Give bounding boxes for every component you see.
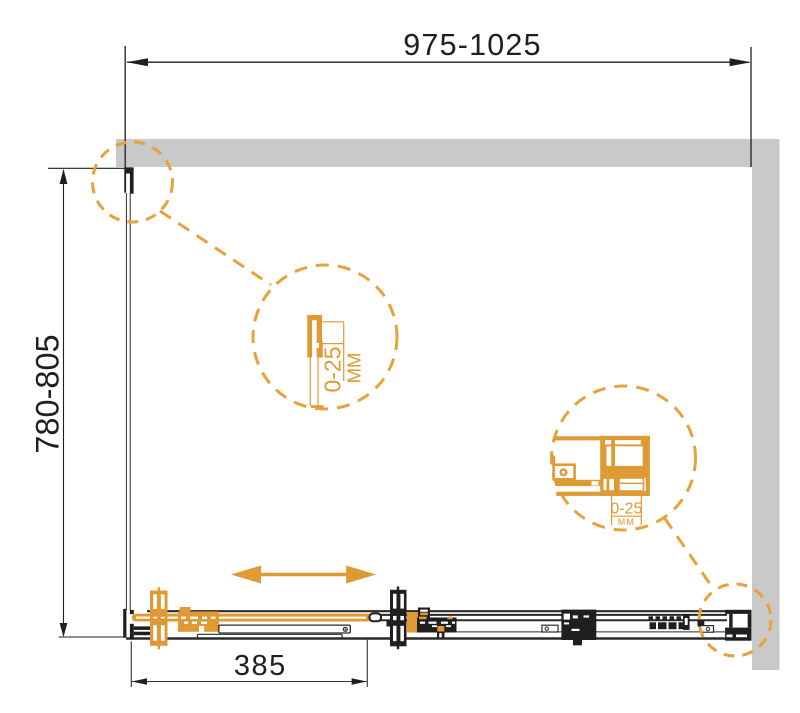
svg-text:385: 385 bbox=[234, 650, 287, 682]
svg-text:MM: MM bbox=[344, 353, 365, 384]
svg-text:975-1025: 975-1025 bbox=[403, 28, 542, 62]
svg-text:MM: MM bbox=[618, 517, 635, 527]
svg-text:780-805: 780-805 bbox=[30, 334, 66, 453]
svg-text:0-25: 0-25 bbox=[320, 346, 346, 392]
svg-text:0-25: 0-25 bbox=[610, 500, 642, 517]
